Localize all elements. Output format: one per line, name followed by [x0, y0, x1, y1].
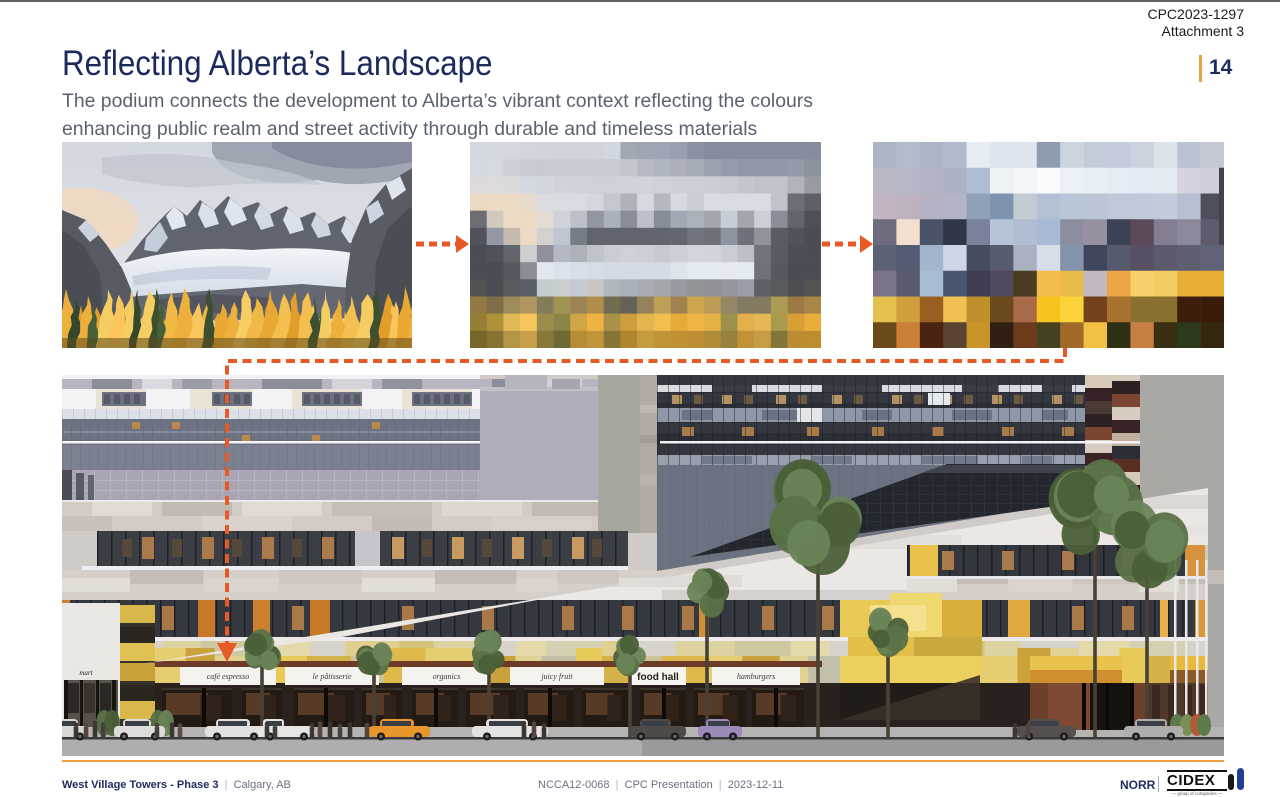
svg-text:café espresso: café espresso	[207, 672, 250, 681]
svg-text:mart: mart	[79, 669, 93, 677]
svg-text:le pâtisserie: le pâtisserie	[313, 672, 352, 681]
svg-text:organics: organics	[433, 672, 461, 681]
svg-text:juicy fruit: juicy fruit	[540, 672, 573, 681]
svg-text:food hall: food hall	[637, 672, 679, 683]
svg-text:hamburgers: hamburgers	[737, 672, 775, 681]
